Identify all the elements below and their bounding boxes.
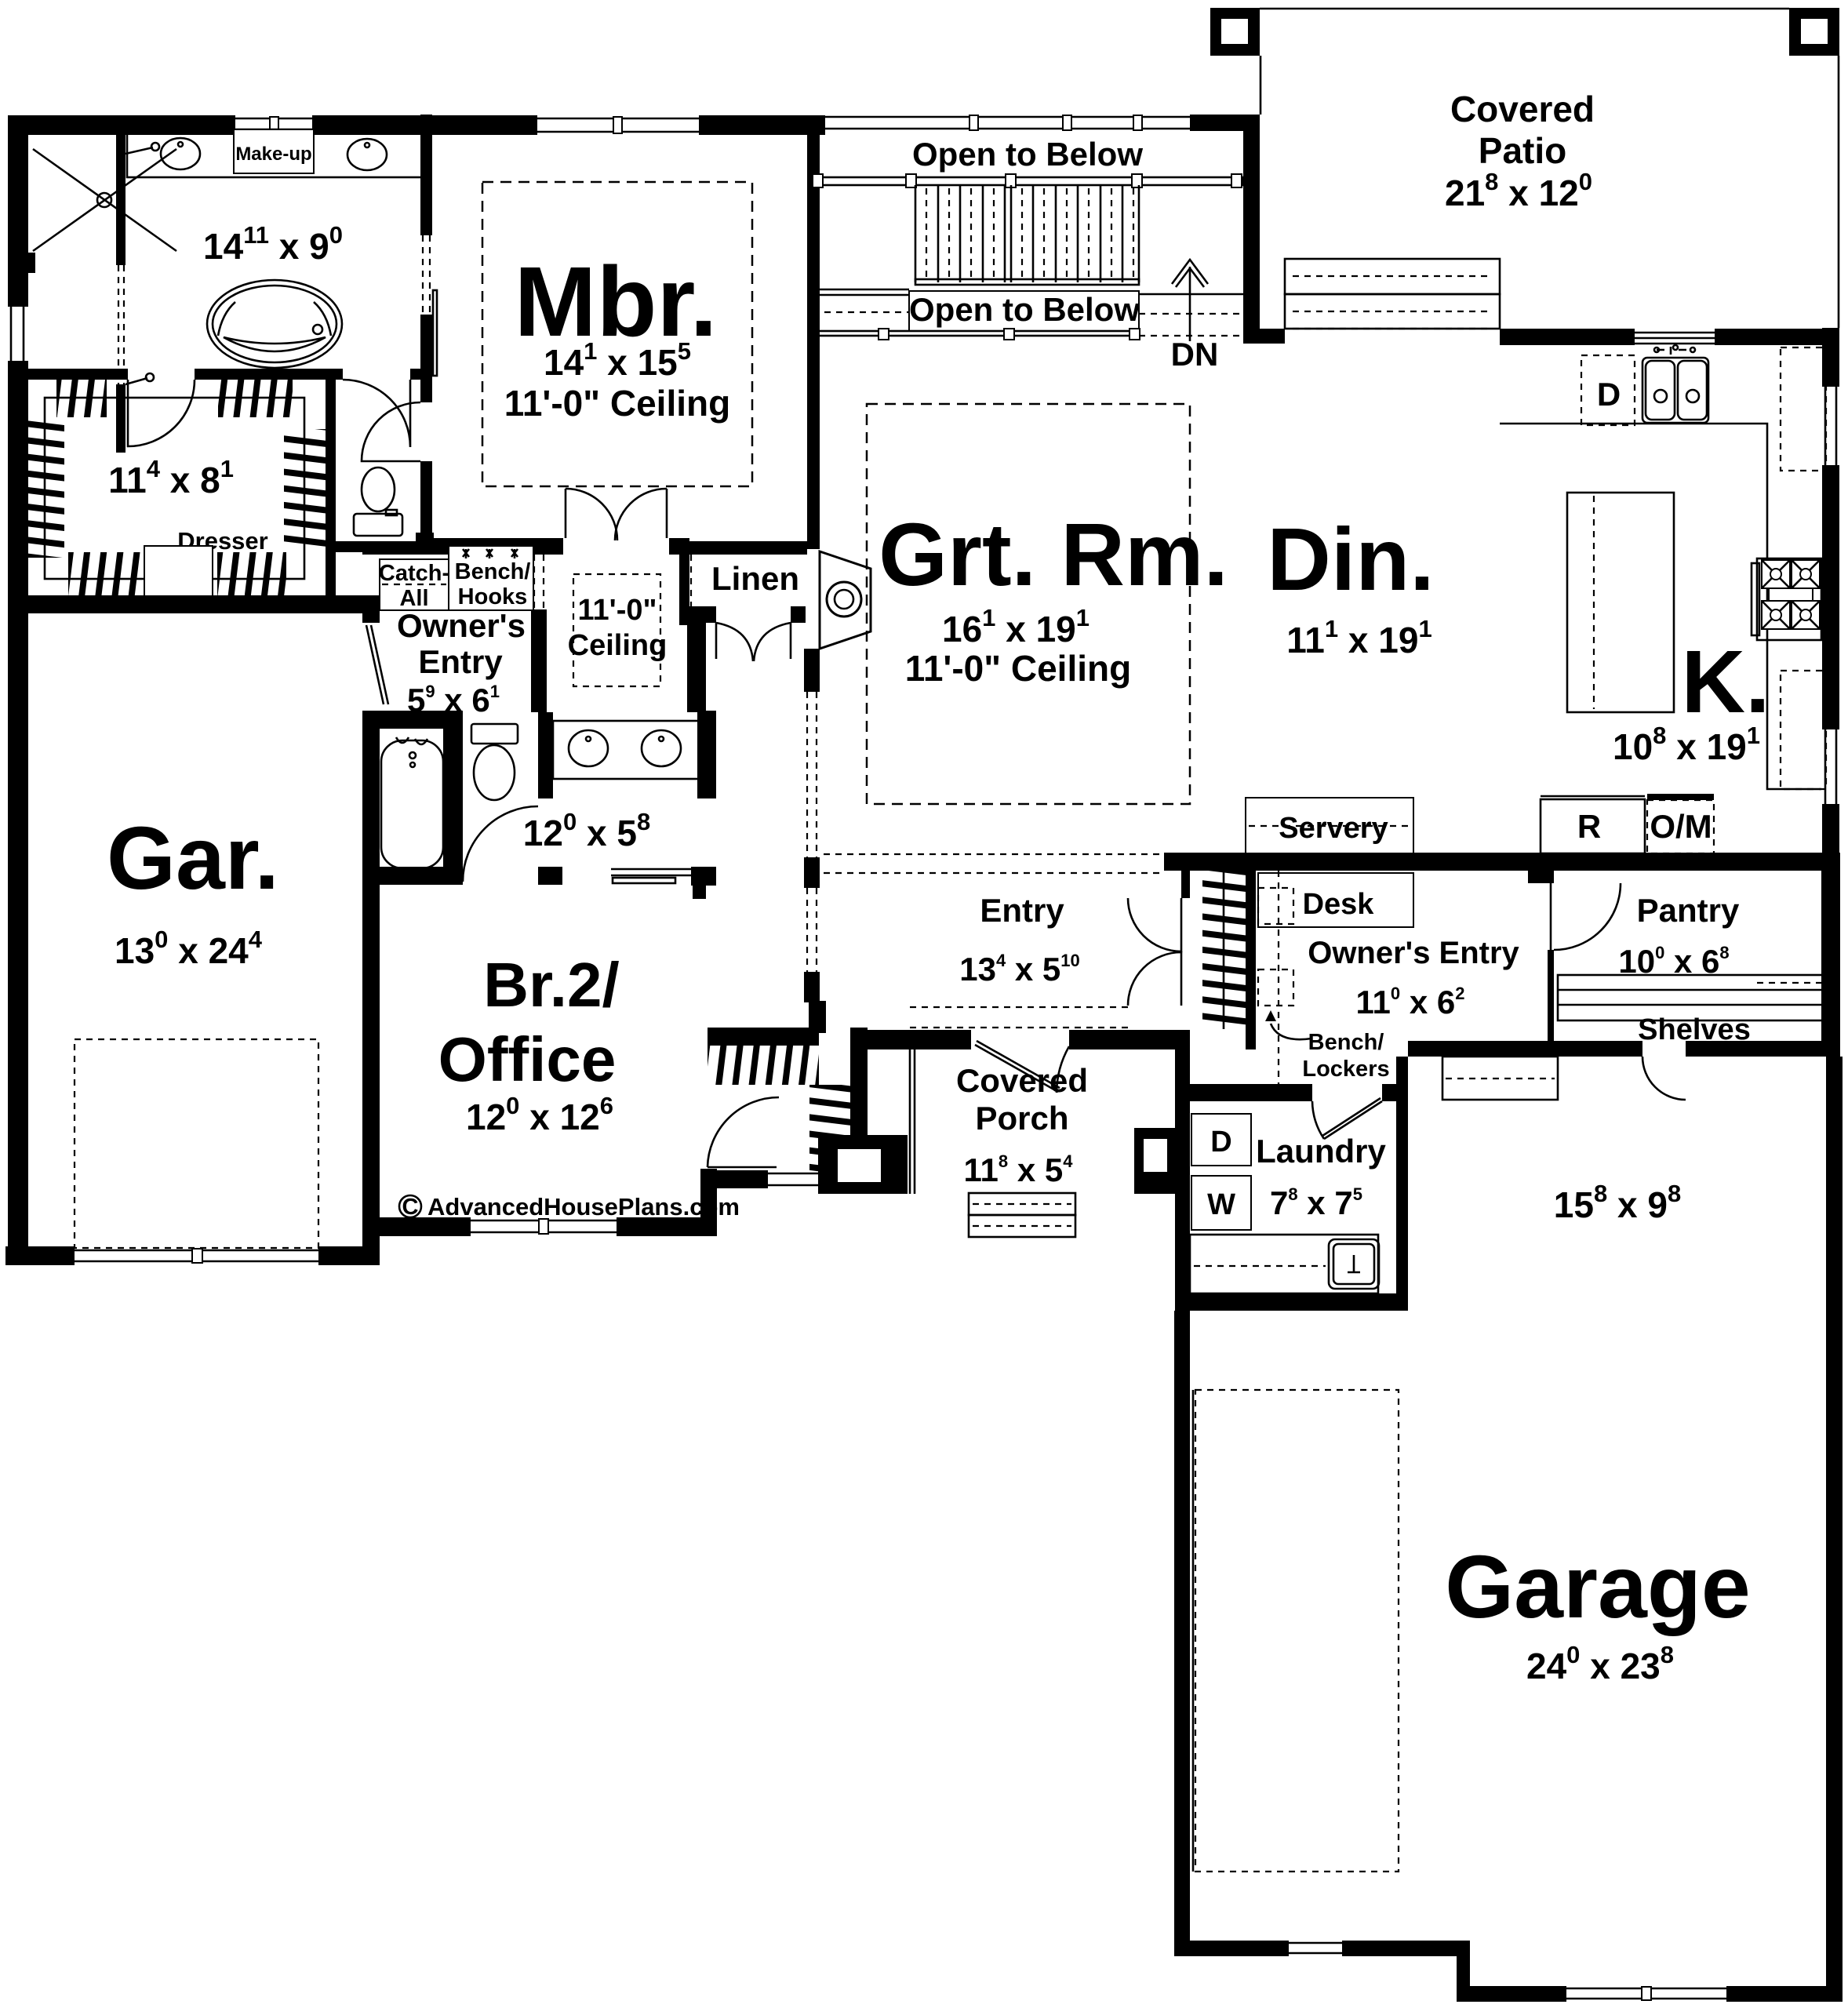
svg-text:Laundry: Laundry — [1256, 1133, 1386, 1170]
svg-text:218 x 120: 218 x 120 — [1445, 168, 1592, 213]
svg-text:Linen: Linen — [711, 560, 799, 597]
svg-text:Owner's Entry: Owner's Entry — [1308, 936, 1519, 970]
svg-text:1411 x 90: 1411 x 90 — [203, 221, 343, 267]
svg-text:Entry: Entry — [418, 643, 503, 680]
svg-text:R: R — [1577, 808, 1601, 845]
svg-text:78 x 75: 78 x 75 — [1270, 1184, 1362, 1221]
svg-text:120 x 58: 120 x 58 — [523, 808, 650, 853]
svg-text:Bench/: Bench/ — [455, 559, 531, 584]
svg-text:Lockers: Lockers — [1302, 1057, 1389, 1082]
svg-text:Din.: Din. — [1267, 510, 1434, 609]
svg-text:DN: DN — [1171, 336, 1219, 373]
svg-text:Owner's: Owner's — [397, 607, 526, 644]
svg-text:141 x 155: 141 x 155 — [544, 337, 691, 383]
svg-text:114 x 81: 114 x 81 — [108, 455, 234, 500]
svg-text:Covered: Covered — [956, 1062, 1088, 1099]
svg-text:Catch-: Catch- — [379, 561, 449, 586]
svg-text:Bench/: Bench/ — [1308, 1030, 1384, 1055]
svg-text:Porch: Porch — [975, 1100, 1068, 1137]
svg-text:Servery: Servery — [1279, 812, 1388, 845]
svg-text:D: D — [1210, 1126, 1231, 1159]
svg-text:W: W — [1207, 1188, 1235, 1221]
svg-text:Patio: Patio — [1479, 130, 1566, 171]
svg-text:O/M: O/M — [1650, 808, 1712, 845]
svg-text:11'-0" Ceiling: 11'-0" Ceiling — [504, 383, 730, 424]
svg-text:Open to Below: Open to Below — [912, 136, 1143, 173]
svg-text:Garage: Garage — [1445, 1537, 1750, 1636]
svg-text:240 x 238: 240 x 238 — [1526, 1641, 1674, 1686]
svg-text:Pantry: Pantry — [1637, 892, 1740, 929]
svg-text:Gar.: Gar. — [107, 809, 279, 908]
svg-text:161 x 191: 161 x 191 — [942, 604, 1090, 649]
svg-text:Entry: Entry — [980, 892, 1064, 929]
svg-text:K.: K. — [1682, 632, 1770, 731]
svg-text:D: D — [1597, 376, 1621, 413]
svg-text:Make-up: Make-up — [235, 144, 311, 165]
svg-text:120 x 126: 120 x 126 — [466, 1092, 613, 1137]
svg-text:AdvancedHousePlans.com: AdvancedHousePlans.com — [427, 1193, 740, 1220]
svg-text:Grt. Rm.: Grt. Rm. — [879, 505, 1228, 604]
svg-text:11'-0" Ceiling: 11'-0" Ceiling — [905, 648, 1131, 689]
svg-text:158 x 98: 158 x 98 — [1554, 1180, 1681, 1225]
svg-text:Ceiling: Ceiling — [568, 629, 668, 662]
svg-text:Desk: Desk — [1303, 888, 1375, 921]
svg-text:111 x 191: 111 x 191 — [1286, 615, 1431, 660]
svg-text:Open to Below: Open to Below — [909, 291, 1140, 328]
svg-text:110 x 62: 110 x 62 — [1356, 984, 1465, 1020]
svg-text:130 x 244: 130 x 244 — [115, 926, 263, 971]
svg-text:C: C — [402, 1195, 419, 1220]
svg-text:Hooks: Hooks — [458, 584, 528, 609]
svg-text:Br.2/: Br.2/ — [483, 950, 619, 1020]
svg-text:Office: Office — [438, 1024, 617, 1094]
svg-text:118 x 54: 118 x 54 — [964, 1151, 1074, 1188]
svg-text:108 x 191: 108 x 191 — [1613, 722, 1760, 767]
svg-text:Covered: Covered — [1450, 89, 1595, 129]
svg-text:11'-0": 11'-0" — [577, 594, 657, 627]
